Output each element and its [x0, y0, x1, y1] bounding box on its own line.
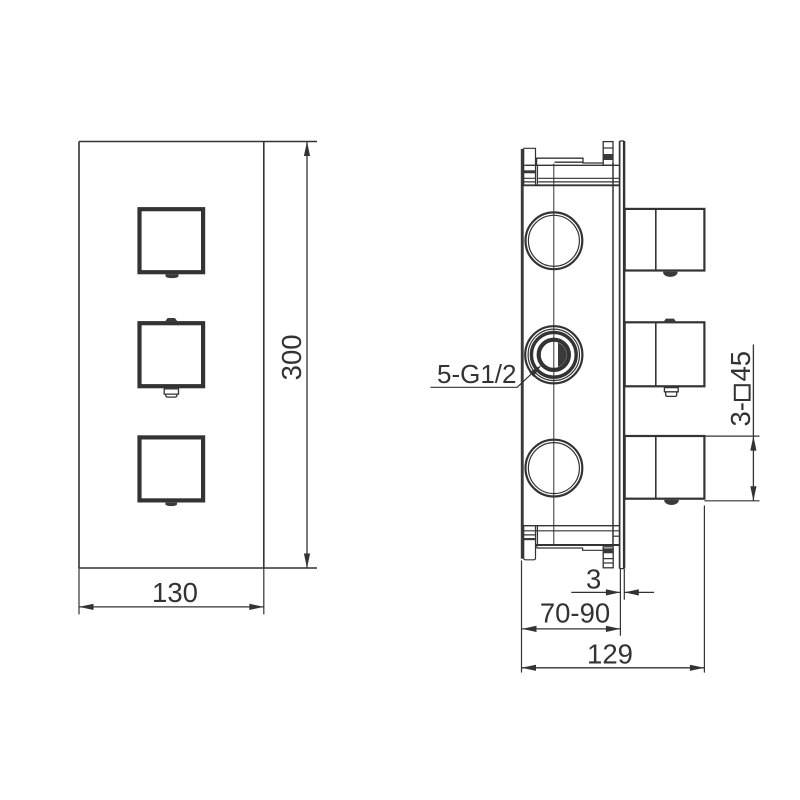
svg-text:3-: 3- [725, 402, 756, 426]
svg-text:129: 129 [587, 639, 633, 670]
svg-text:5-G1/2: 5-G1/2 [437, 359, 517, 389]
svg-text:3: 3 [586, 564, 601, 595]
svg-text:130: 130 [152, 577, 198, 608]
svg-text:70-90: 70-90 [540, 598, 610, 629]
svg-text:45: 45 [725, 351, 756, 382]
svg-text:300: 300 [276, 334, 307, 380]
